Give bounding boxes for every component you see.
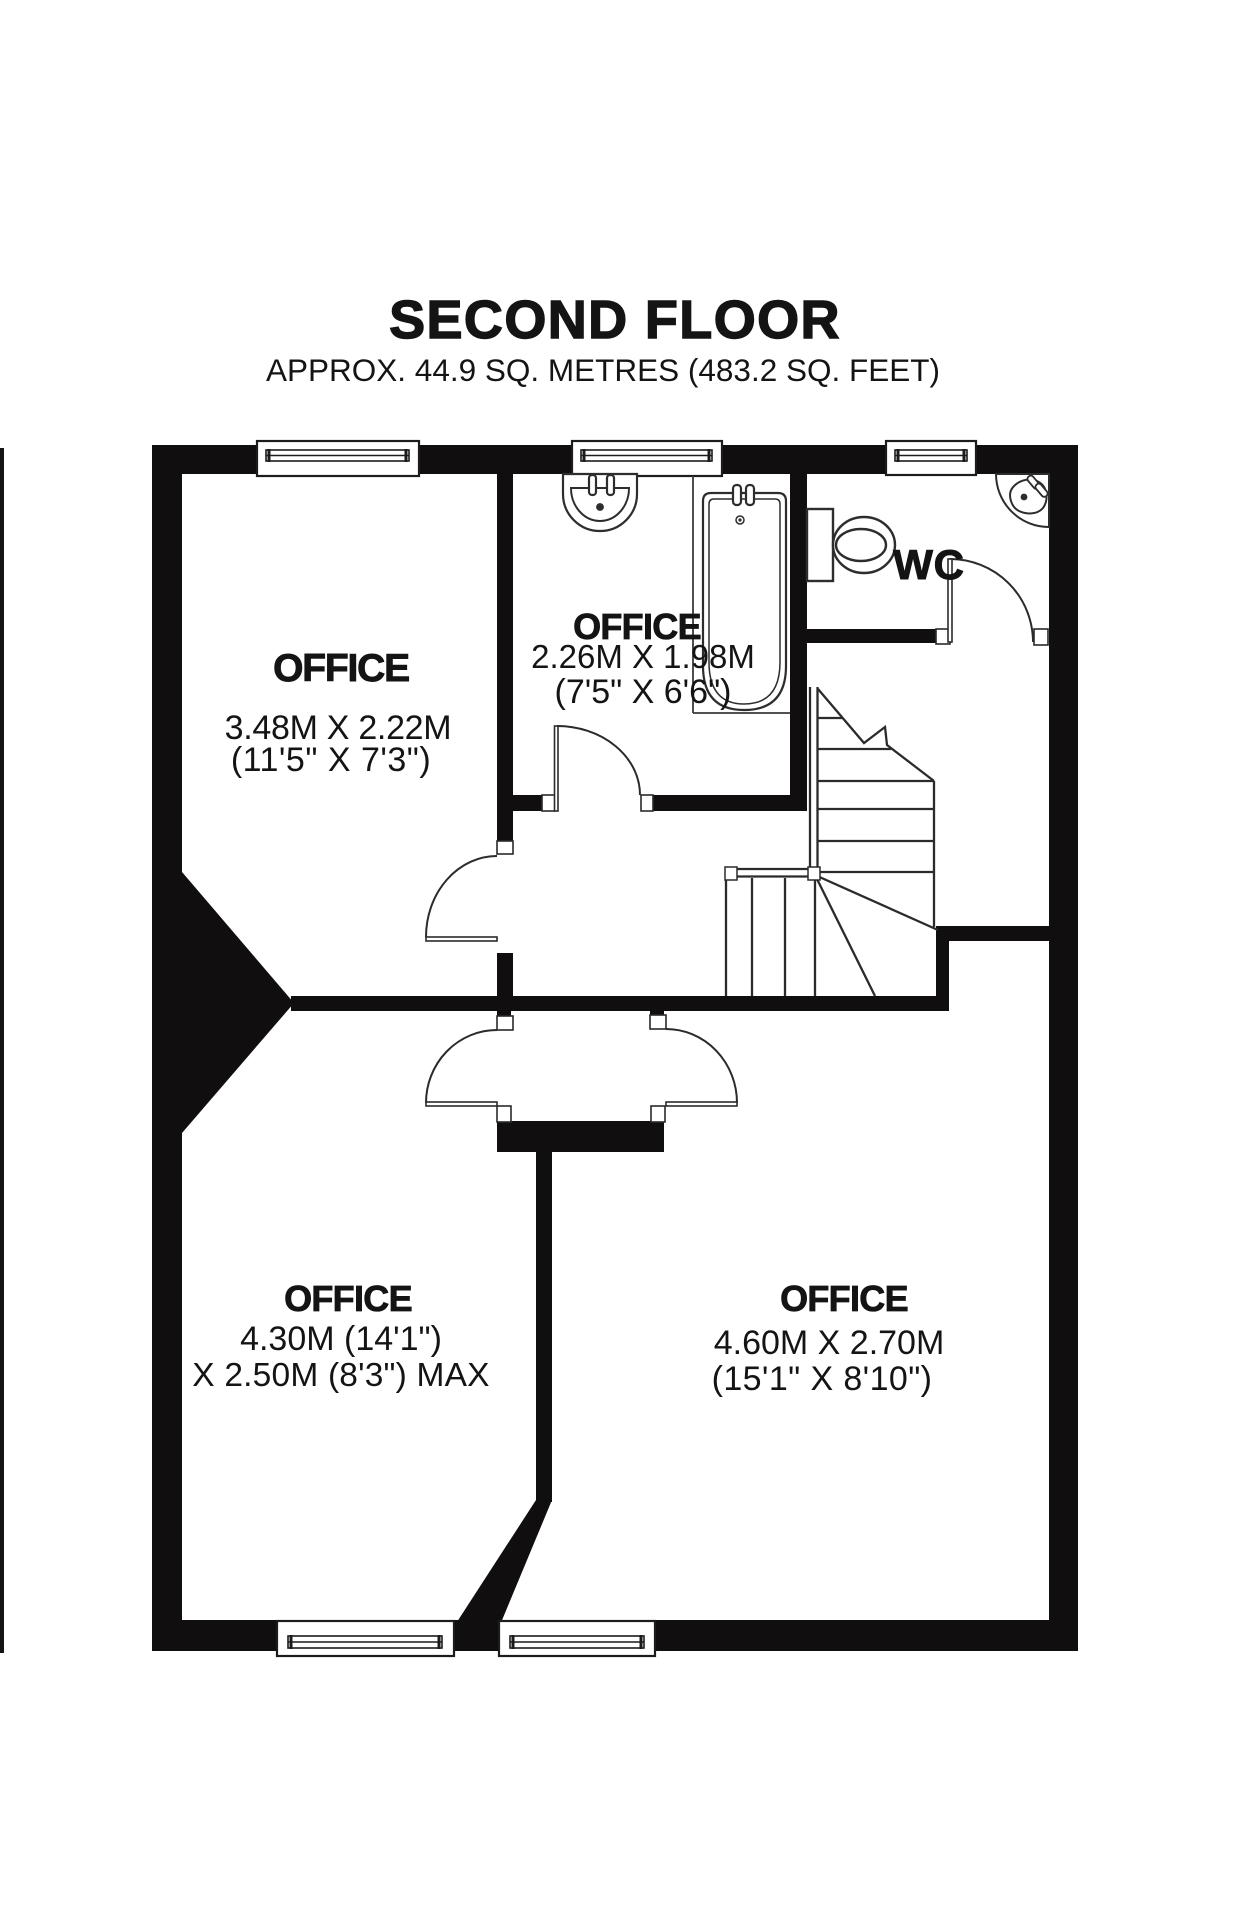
svg-text:OFFICE: OFFICE: [273, 647, 409, 690]
svg-text:4.30M (14'1"): 4.30M (14'1"): [240, 1320, 442, 1358]
svg-text:(11'5" X 7'3"): (11'5" X 7'3"): [231, 741, 431, 779]
svg-text:(15'1" X 8'10"): (15'1" X 8'10"): [712, 1360, 933, 1398]
svg-text:(7'5" X 6'6"): (7'5" X 6'6"): [555, 673, 732, 711]
svg-text:OFFICE: OFFICE: [780, 1278, 908, 1319]
svg-text:4.60M X 2.70M: 4.60M X 2.70M: [714, 1324, 945, 1362]
svg-text:APPROX. 44.9 SQ. METRES (483.2: APPROX. 44.9 SQ. METRES (483.2 SQ. FEET): [266, 352, 940, 388]
svg-text:SECOND FLOOR: SECOND FLOOR: [389, 290, 841, 350]
svg-text:OFFICE: OFFICE: [284, 1278, 412, 1319]
svg-text:2.26M X 1.98M: 2.26M X 1.98M: [531, 638, 755, 675]
svg-text:WC: WC: [893, 541, 965, 588]
svg-text:X 2.50M (8'3") MAX: X 2.50M (8'3") MAX: [192, 1357, 489, 1394]
